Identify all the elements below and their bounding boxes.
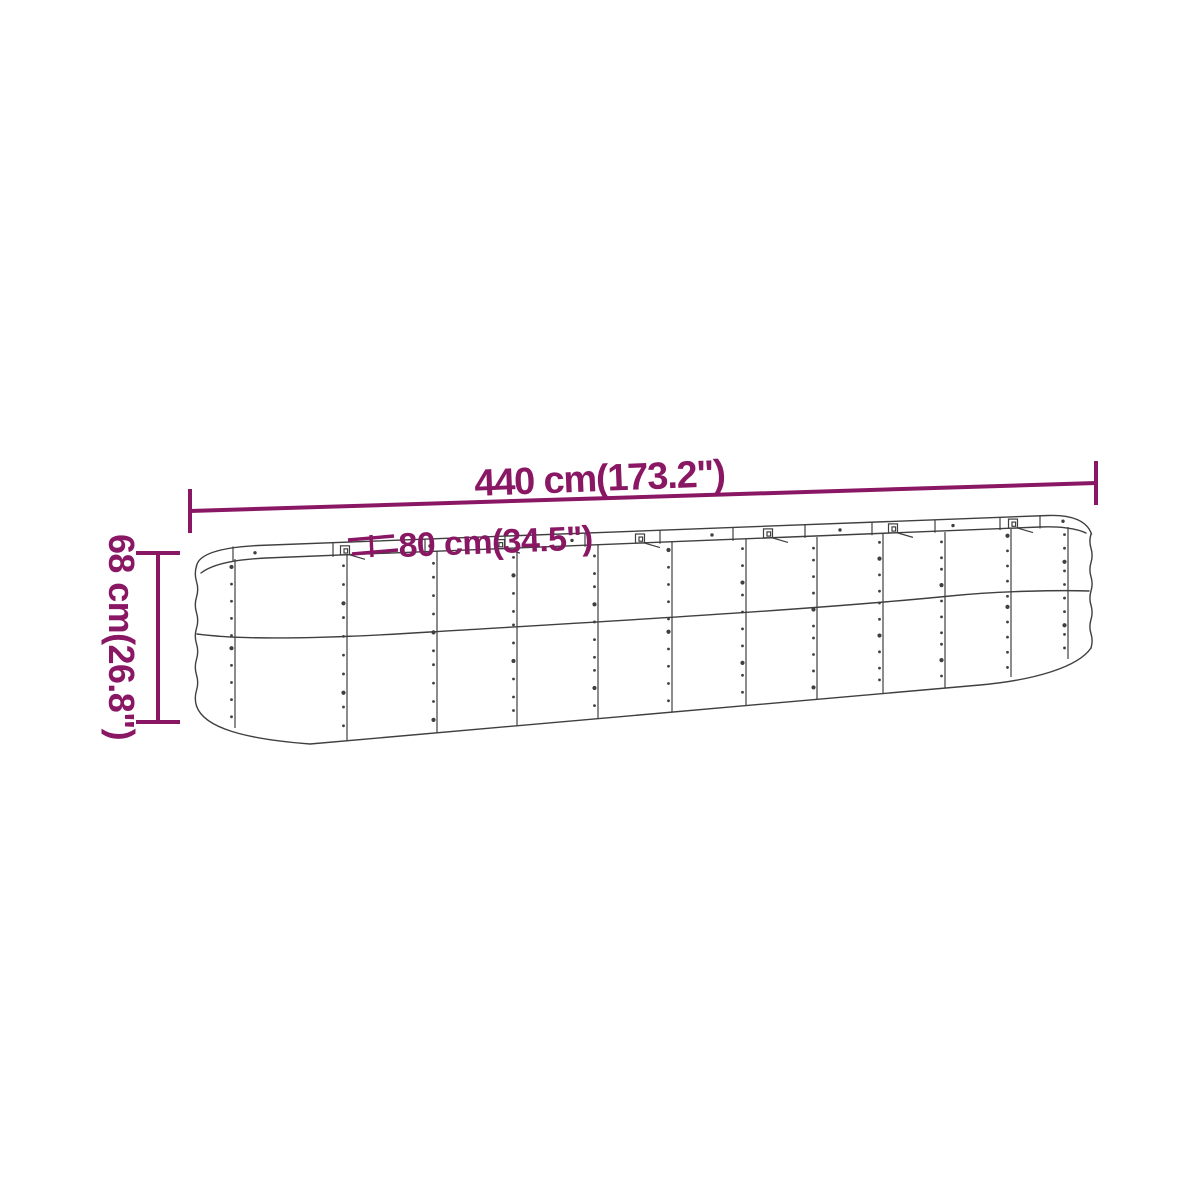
rivet-dot	[667, 648, 670, 651]
rivet-dot	[1062, 560, 1066, 564]
rivet-dot	[512, 642, 515, 645]
rivet-dot	[940, 600, 943, 603]
rivet-dot	[342, 724, 345, 727]
rivet-dot	[230, 600, 233, 603]
rivet-dot	[512, 624, 515, 627]
width-dimension-tick	[371, 535, 372, 557]
rivet-dot	[812, 592, 815, 595]
height-dimension: 68 cm(26.8")	[101, 534, 180, 740]
rivet-dot	[230, 664, 233, 667]
rivet-dot	[741, 564, 744, 567]
rivet-dot	[342, 583, 345, 586]
rivet-dot	[940, 556, 943, 559]
rivet-dot	[1063, 633, 1066, 636]
rivet-dot	[666, 548, 670, 552]
rivet-dot	[230, 698, 233, 701]
rivet-dot	[431, 718, 435, 722]
rivet-dot	[432, 663, 435, 666]
rivet-dot	[1005, 534, 1009, 538]
rivet-dot	[812, 637, 815, 640]
rivet-dot	[878, 602, 881, 605]
rim-rivet-dot	[253, 551, 256, 554]
rivet-dot	[1006, 636, 1009, 639]
rivet-dot	[593, 656, 596, 659]
rivet-dot	[1006, 549, 1009, 552]
rim-rivet-dot	[1061, 520, 1064, 523]
rivet-dot	[592, 686, 596, 690]
rivet-dot	[1063, 647, 1066, 650]
rivet-dot	[1063, 569, 1066, 572]
rivet-dot	[432, 594, 435, 597]
rivet-dot	[1006, 595, 1009, 598]
rivet-dot	[667, 583, 670, 586]
rivet-dot	[878, 541, 881, 544]
rivet-dot	[593, 555, 596, 558]
diagram-canvas: 440 cm(173.2") 80 cm(34.5") 68 cm(26.8")	[0, 0, 1200, 1200]
rivet-dot	[741, 594, 744, 597]
product-dimension-diagram: 440 cm(173.2") 80 cm(34.5") 68 cm(26.8")	[0, 0, 1200, 1200]
rivet-dot	[741, 674, 744, 677]
rivet-dot	[940, 541, 943, 544]
rivet-dot	[1006, 565, 1009, 568]
rivet-dot	[1063, 610, 1066, 613]
rivet-dot	[939, 658, 943, 662]
rivet-dot	[512, 696, 515, 699]
rivet-dot	[342, 654, 345, 657]
rivet-dot	[741, 628, 744, 631]
rivet-dot	[741, 644, 744, 647]
rivet-dot	[512, 610, 515, 613]
rivet-dot	[593, 585, 596, 588]
height-dimension-label: 68 cm(26.8")	[101, 534, 142, 740]
rivet-dot	[342, 616, 345, 619]
rivet-dot	[1062, 623, 1066, 627]
rim-rivet-dot	[951, 524, 954, 527]
rivet-dot	[512, 709, 515, 712]
rivet-dot	[1063, 533, 1066, 536]
rivet-dot	[341, 601, 345, 605]
rivet-dot	[342, 673, 345, 676]
rivet-dot	[432, 700, 435, 703]
rivet-dot	[667, 699, 670, 702]
rivet-dot	[230, 681, 233, 684]
rivet-dot	[878, 574, 881, 577]
rivet-dot	[878, 590, 881, 593]
rivet-dot	[1005, 605, 1009, 609]
rim-rivet-dot	[710, 533, 713, 536]
rivet-dot	[592, 602, 596, 606]
rivet-dot	[229, 646, 233, 650]
rivet-dot	[342, 706, 345, 709]
rivet-dot	[1006, 580, 1009, 583]
rivet-dot	[667, 600, 670, 603]
rivet-dot	[812, 575, 815, 578]
rivet-dot	[740, 580, 744, 584]
rivet-dot	[432, 613, 435, 616]
rivet-dot	[593, 572, 596, 575]
rivet-dot	[1006, 651, 1009, 654]
rivet-dot	[877, 633, 881, 637]
rivet-dot	[1006, 621, 1009, 624]
rivet-dot	[667, 618, 670, 621]
rivet-dot	[940, 643, 943, 646]
rivet-dot	[878, 618, 881, 621]
rivet-dot	[878, 650, 881, 653]
rivet-dot	[432, 576, 435, 579]
rivet-dot	[1063, 583, 1066, 586]
rivet-dot	[341, 691, 345, 695]
rivet-dot	[667, 665, 670, 668]
rivet-dot	[811, 607, 815, 611]
rivet-dot	[1063, 597, 1066, 600]
rivet-dot	[811, 685, 815, 689]
rivet-dot	[878, 678, 881, 681]
rivet-dot	[593, 638, 596, 641]
rivet-dot	[812, 670, 815, 673]
rivet-dot	[1006, 666, 1009, 669]
rivet-dot	[940, 631, 943, 634]
rivet-dot	[1063, 547, 1066, 550]
rivet-dot	[939, 583, 943, 587]
rivet-dot	[342, 635, 345, 638]
rivet-dot	[593, 669, 596, 672]
rivet-dot	[511, 573, 515, 577]
planter-drawing	[195, 515, 1092, 744]
rivet-dot	[230, 617, 233, 620]
rivet-dot	[512, 592, 515, 595]
rivet-dot	[812, 625, 815, 628]
rivet-dot	[667, 566, 670, 569]
rivet-dot	[877, 557, 881, 561]
rivet-dot	[342, 564, 345, 567]
rivet-dot	[741, 611, 744, 614]
rivet-dot	[230, 715, 233, 718]
rivet-dot	[740, 661, 744, 665]
rivet-dot	[940, 568, 943, 571]
rivet-dot	[230, 583, 233, 586]
rivet-dot	[812, 653, 815, 656]
rivet-dot	[593, 704, 596, 707]
rivet-dot	[512, 678, 515, 681]
rivet-dot	[230, 634, 233, 637]
rivet-dot	[741, 691, 744, 694]
rivet-dot	[229, 565, 233, 569]
width-dimension-label: 80 cm(34.5")	[398, 519, 594, 565]
rivet-dot	[431, 630, 435, 634]
rivet-dot	[666, 630, 670, 634]
rivet-dot	[432, 682, 435, 685]
rivet-dot	[741, 547, 744, 550]
rivet-dot	[812, 559, 815, 562]
rivet-dot	[432, 649, 435, 652]
rivet-dot	[940, 616, 943, 619]
rim-rivet-dot	[838, 528, 841, 531]
planter-body-fill	[197, 515, 1092, 744]
rivet-dot	[593, 621, 596, 624]
rivet-dot	[878, 667, 881, 670]
rivet-dot	[511, 659, 515, 663]
rivet-dot	[667, 682, 670, 685]
rivet-dot	[812, 547, 815, 550]
rivet-dot	[940, 675, 943, 678]
